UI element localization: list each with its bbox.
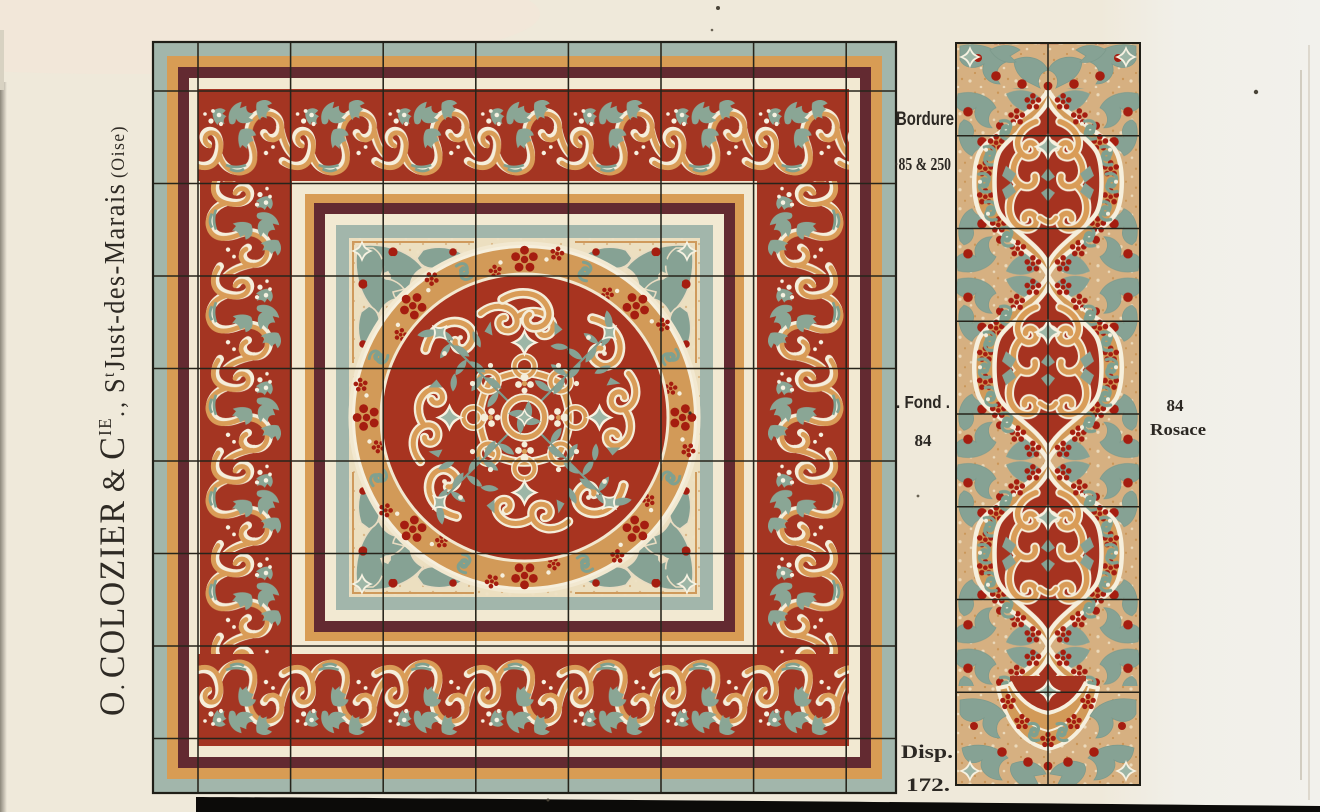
svg-text:84: 84 [1167, 396, 1185, 415]
svg-text:84: 84 [915, 431, 933, 450]
svg-text:Rosace: Rosace [1150, 420, 1206, 439]
svg-text:·85 & 250: ·85 & 250 [894, 154, 951, 174]
svg-text:172.: 172. [906, 775, 950, 796]
svg-text:. Fond .: . Fond . [896, 392, 950, 412]
svg-text:Disp.: Disp. [901, 742, 953, 763]
svg-text:Bordure: Bordure [896, 109, 954, 130]
